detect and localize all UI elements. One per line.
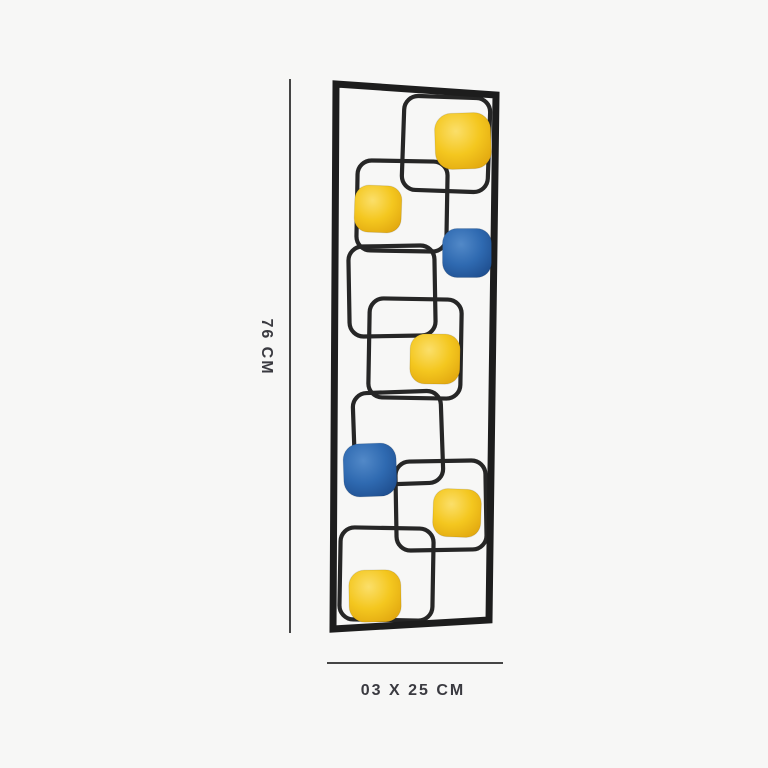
wall-art-illustration [0, 0, 768, 768]
wire-square [348, 245, 436, 336]
yellow-enamel-square [349, 570, 402, 623]
blue-enamel-square [343, 443, 398, 498]
yellow-enamel-square [354, 185, 403, 234]
width-depth-dimension-line [327, 662, 503, 664]
yellow-enamel-square [432, 488, 482, 538]
height-dimension-line [289, 79, 291, 633]
product-dimension-image: 76 CM 03 X 25 CM [0, 0, 768, 768]
blue-enamel-square [443, 229, 492, 278]
width-depth-dimension-label: 03 X 25 CM [361, 682, 465, 700]
yellow-enamel-square [410, 334, 461, 385]
yellow-enamel-square [434, 112, 492, 170]
height-dimension-label: 76 CM [257, 318, 275, 375]
